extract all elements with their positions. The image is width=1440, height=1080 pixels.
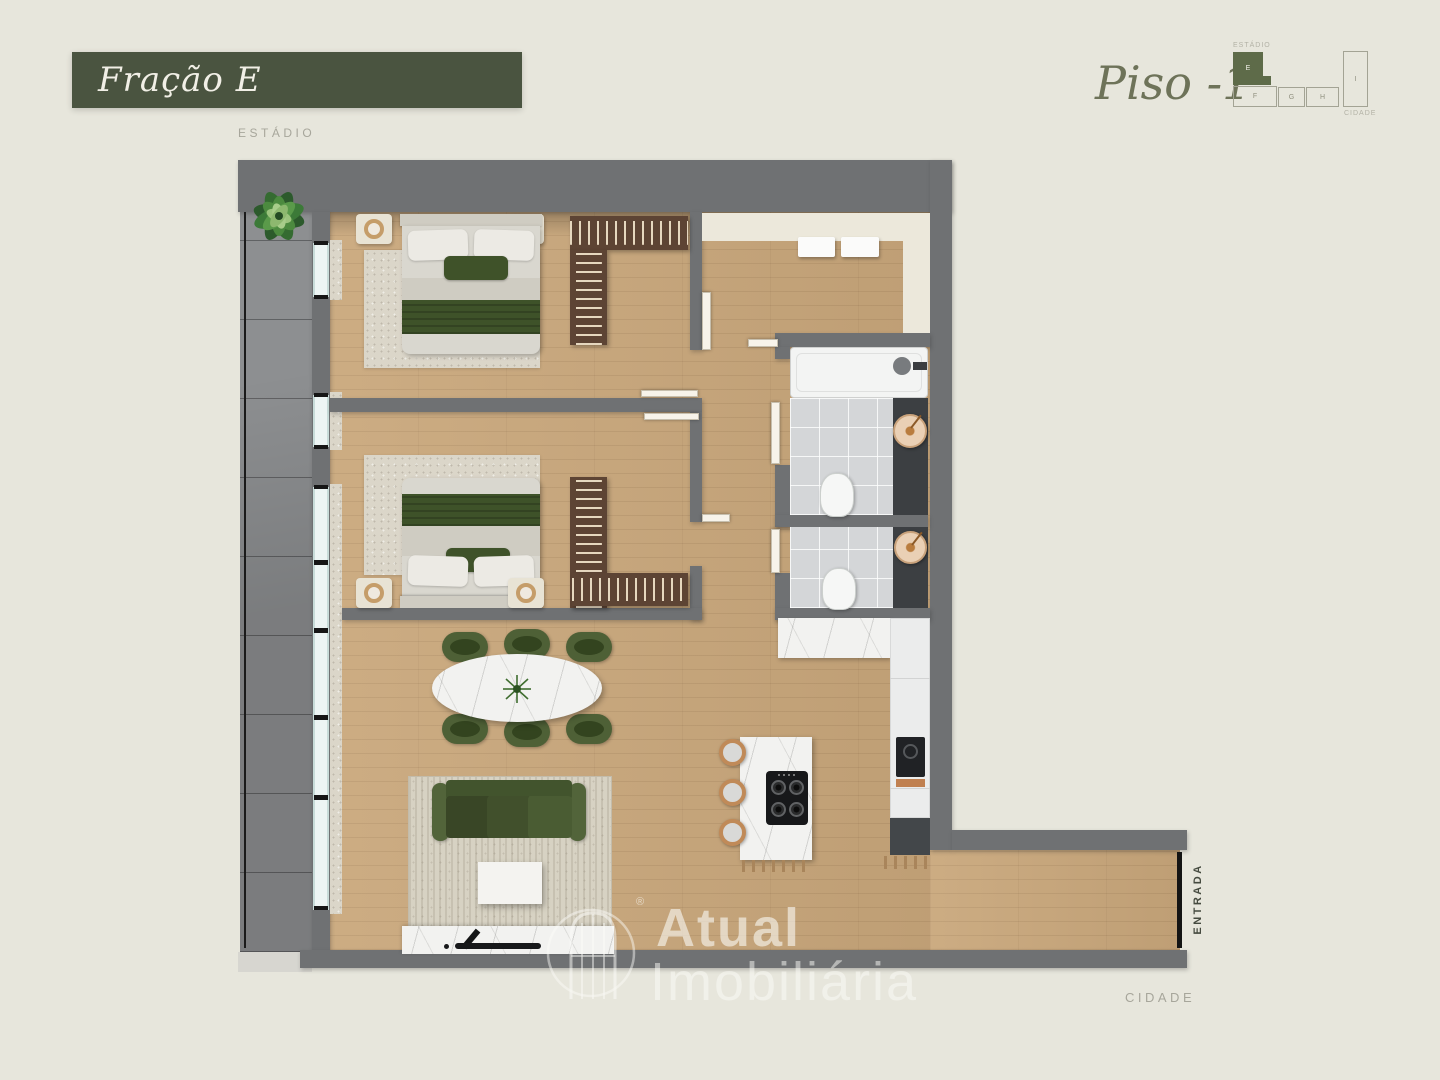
dining-chair [566,714,612,744]
wall-bathroom-left [775,347,790,359]
window-frame [314,241,328,245]
window-mullion [314,715,328,720]
watermark-brand-bottom: Imobiliária [650,955,918,1009]
built-in-oven [896,737,925,777]
window-frame [314,445,328,449]
watermark-brand-top: Atual [656,901,801,955]
window [313,395,329,447]
sofa-seat [446,796,572,838]
wardrobe [570,216,688,250]
bar-stool [719,819,746,846]
wall-hallway [690,412,702,522]
minimap-unit-g-label: G [1289,94,1294,101]
wall-right [930,160,952,850]
window-mullion [314,560,328,565]
headboard [400,214,542,226]
minimap-unit-i: I [1343,51,1368,107]
balcony-railing [244,190,246,948]
wall-bedroom-divider [330,398,702,412]
context-label-cidade-bottom: CIDADE [1125,990,1195,1005]
entrance-corridor-floor [930,850,1180,950]
door-bathroom1 [771,402,780,464]
minimap-estadio-label: ESTÁDIO [1233,42,1271,49]
green-throw [402,300,540,334]
window-mullion [314,628,328,633]
dining-chair [566,632,612,662]
bar-stool [719,779,746,806]
building-minimap: ESTÁDIO E F G H I CIDADE [1226,38,1378,124]
wall-bedroom1-right [690,212,702,350]
coffee-table [478,862,542,904]
bedside-lamp-icon [516,583,536,603]
wall-living-divider [342,608,702,620]
window [313,243,329,297]
wall-bathroom-divider [775,515,928,527]
registered-mark: ® [636,896,644,908]
minimap-unit-e-label: E [1246,65,1251,72]
minimap-unit-e-step [1263,76,1271,85]
bedside-lamp-icon [364,583,384,603]
gas-hob-icon [766,771,808,825]
bathtub [790,347,928,398]
bathroom2-washbasin [894,531,927,564]
door-bathroom2 [771,529,780,573]
door-hallway [702,514,730,522]
toilet [820,473,854,517]
counter-appliance [798,237,835,257]
minimap-cidade-label: CIDADE [1344,110,1376,117]
window-mullion [314,906,328,910]
window-mullion [314,795,328,800]
door-kitchen-zone [748,339,778,347]
floor-plan-page: Fração E ESTÁDIO Piso -1 ESTÁDIO E F G H… [0,0,1440,1080]
kitchen-counter [778,618,890,658]
door-bedroom2-leaf [641,390,698,397]
bathroom1-washbasin [893,414,927,448]
media-dot [444,944,449,949]
table-plant-icon [500,672,534,706]
wardrobe [572,573,688,606]
wardrobe [570,250,607,345]
wall-bathroom-top [775,333,930,347]
balcony [240,186,312,952]
bedroom1-bed [400,214,542,354]
minimap-unit-h-label: H [1320,94,1325,101]
minimap-unit-h: H [1306,87,1339,107]
door-bedroom1 [702,292,711,350]
counter-appliance [841,237,879,257]
laundry-counter-column [903,241,930,333]
entrance-label: ENTRADA [1192,863,1204,935]
window-frame [314,393,328,397]
bathtub-faucet-icon [913,362,927,370]
oven-handle [896,779,925,787]
minimap-unit-i-label: I [1355,76,1357,83]
pillow [407,555,468,587]
runner-fringe [884,856,928,869]
kitchen-counter-end [890,818,930,855]
context-label-estadio-top: ESTÁDIO [238,126,315,140]
window [313,487,329,910]
minimap-unit-e: E [1233,52,1263,85]
toilet [822,568,856,610]
island-fringe [742,860,812,872]
accent-pillow [444,256,508,280]
curtain [330,484,342,914]
minimap-unit-f-label: F [1253,93,1257,100]
fraction-title: Fração E [72,60,262,100]
sofa [432,780,586,844]
wall-corridor-top [952,830,1187,850]
green-throw [402,494,540,526]
minimap-unit-f: F [1233,86,1277,107]
brand-logo-icon [545,893,640,1008]
minimap-unit-g: G [1278,87,1305,107]
bathtub-drain [893,357,911,375]
curtain [330,240,342,300]
bar-stool [719,739,746,766]
soundbar-icon [455,943,541,949]
door-bedroom2-leaf [644,413,699,420]
kitchen-cabinet-column [890,618,930,818]
fraction-title-bar: Fração E [72,52,522,108]
entrance-door [1177,852,1182,948]
window-frame [314,295,328,299]
window-mullion [314,485,328,489]
bedside-lamp-icon [364,219,384,239]
wall-top [238,160,952,212]
plant-icon [244,178,314,254]
